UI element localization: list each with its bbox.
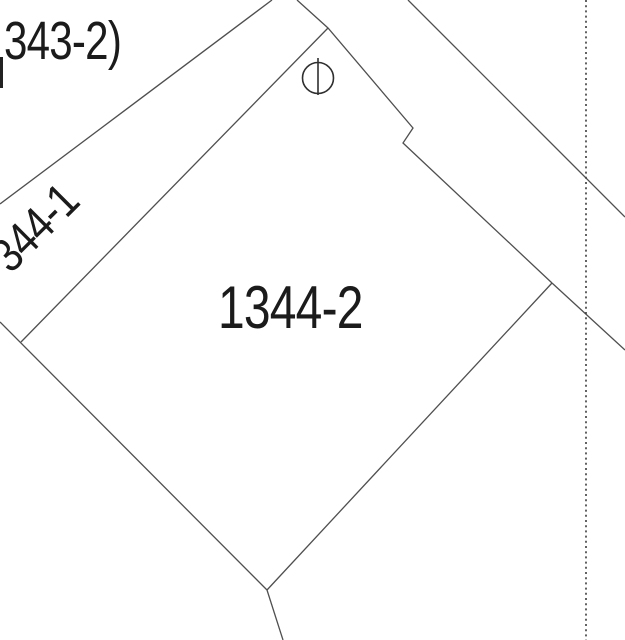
main-parcel-label: 1344-2 (218, 278, 363, 338)
adjacent-parcel-label: 343-2) (4, 14, 121, 68)
east-boundary-extension-line (552, 283, 625, 350)
clipped-glyph-fragment (0, 57, 3, 88)
cadastral-map-canvas[interactable]: 343-2) 344-1 1344-2 (0, 0, 625, 640)
northeast-diagonal-line (408, 0, 625, 217)
survey-marker-icon (303, 58, 334, 95)
northeast-boundary-line (297, 0, 552, 283)
south-boundary-extension-line (267, 590, 283, 640)
lowerleft-boundary-line (0, 322, 267, 590)
